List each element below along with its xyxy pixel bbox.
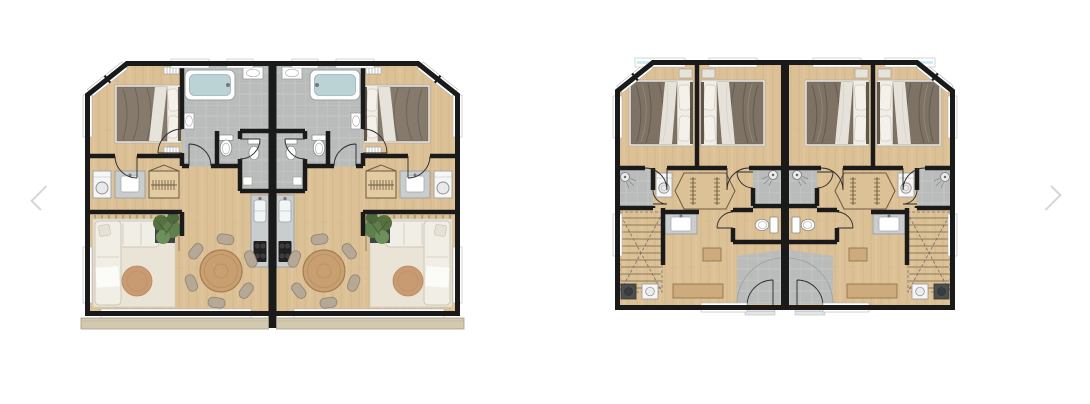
washer-icon: [93, 171, 111, 198]
floor-plan-carousel: [0, 0, 1090, 404]
double-bed: [629, 80, 693, 146]
bathroom-sink: [243, 67, 263, 79]
double-bed: [701, 80, 765, 146]
bathtub: [185, 70, 235, 100]
vanity-sink: [665, 214, 697, 234]
double-bed: [115, 85, 181, 143]
floor-plans-graphic: [0, 0, 1090, 404]
chevron-right-icon: [1036, 185, 1061, 210]
dark-washer-icon: [621, 284, 636, 299]
nightstand: [702, 69, 715, 78]
wardrobe-rack: [675, 173, 735, 209]
appliance-icon: [642, 284, 658, 299]
bench: [673, 284, 723, 298]
vanity-sink: [115, 171, 145, 198]
round-rug: [122, 266, 152, 296]
washer-icon: [656, 173, 672, 197]
wall-sink: [184, 113, 194, 129]
toilet-icon: [219, 135, 233, 156]
bedroom-floor-plan: [613, 58, 957, 315]
bench: [703, 248, 721, 261]
nightstand: [679, 69, 692, 78]
living-floor-plan: [81, 59, 464, 329]
next-slide-button[interactable]: [1036, 170, 1070, 226]
balcony: [81, 318, 269, 329]
entry-floor: [737, 250, 781, 304]
